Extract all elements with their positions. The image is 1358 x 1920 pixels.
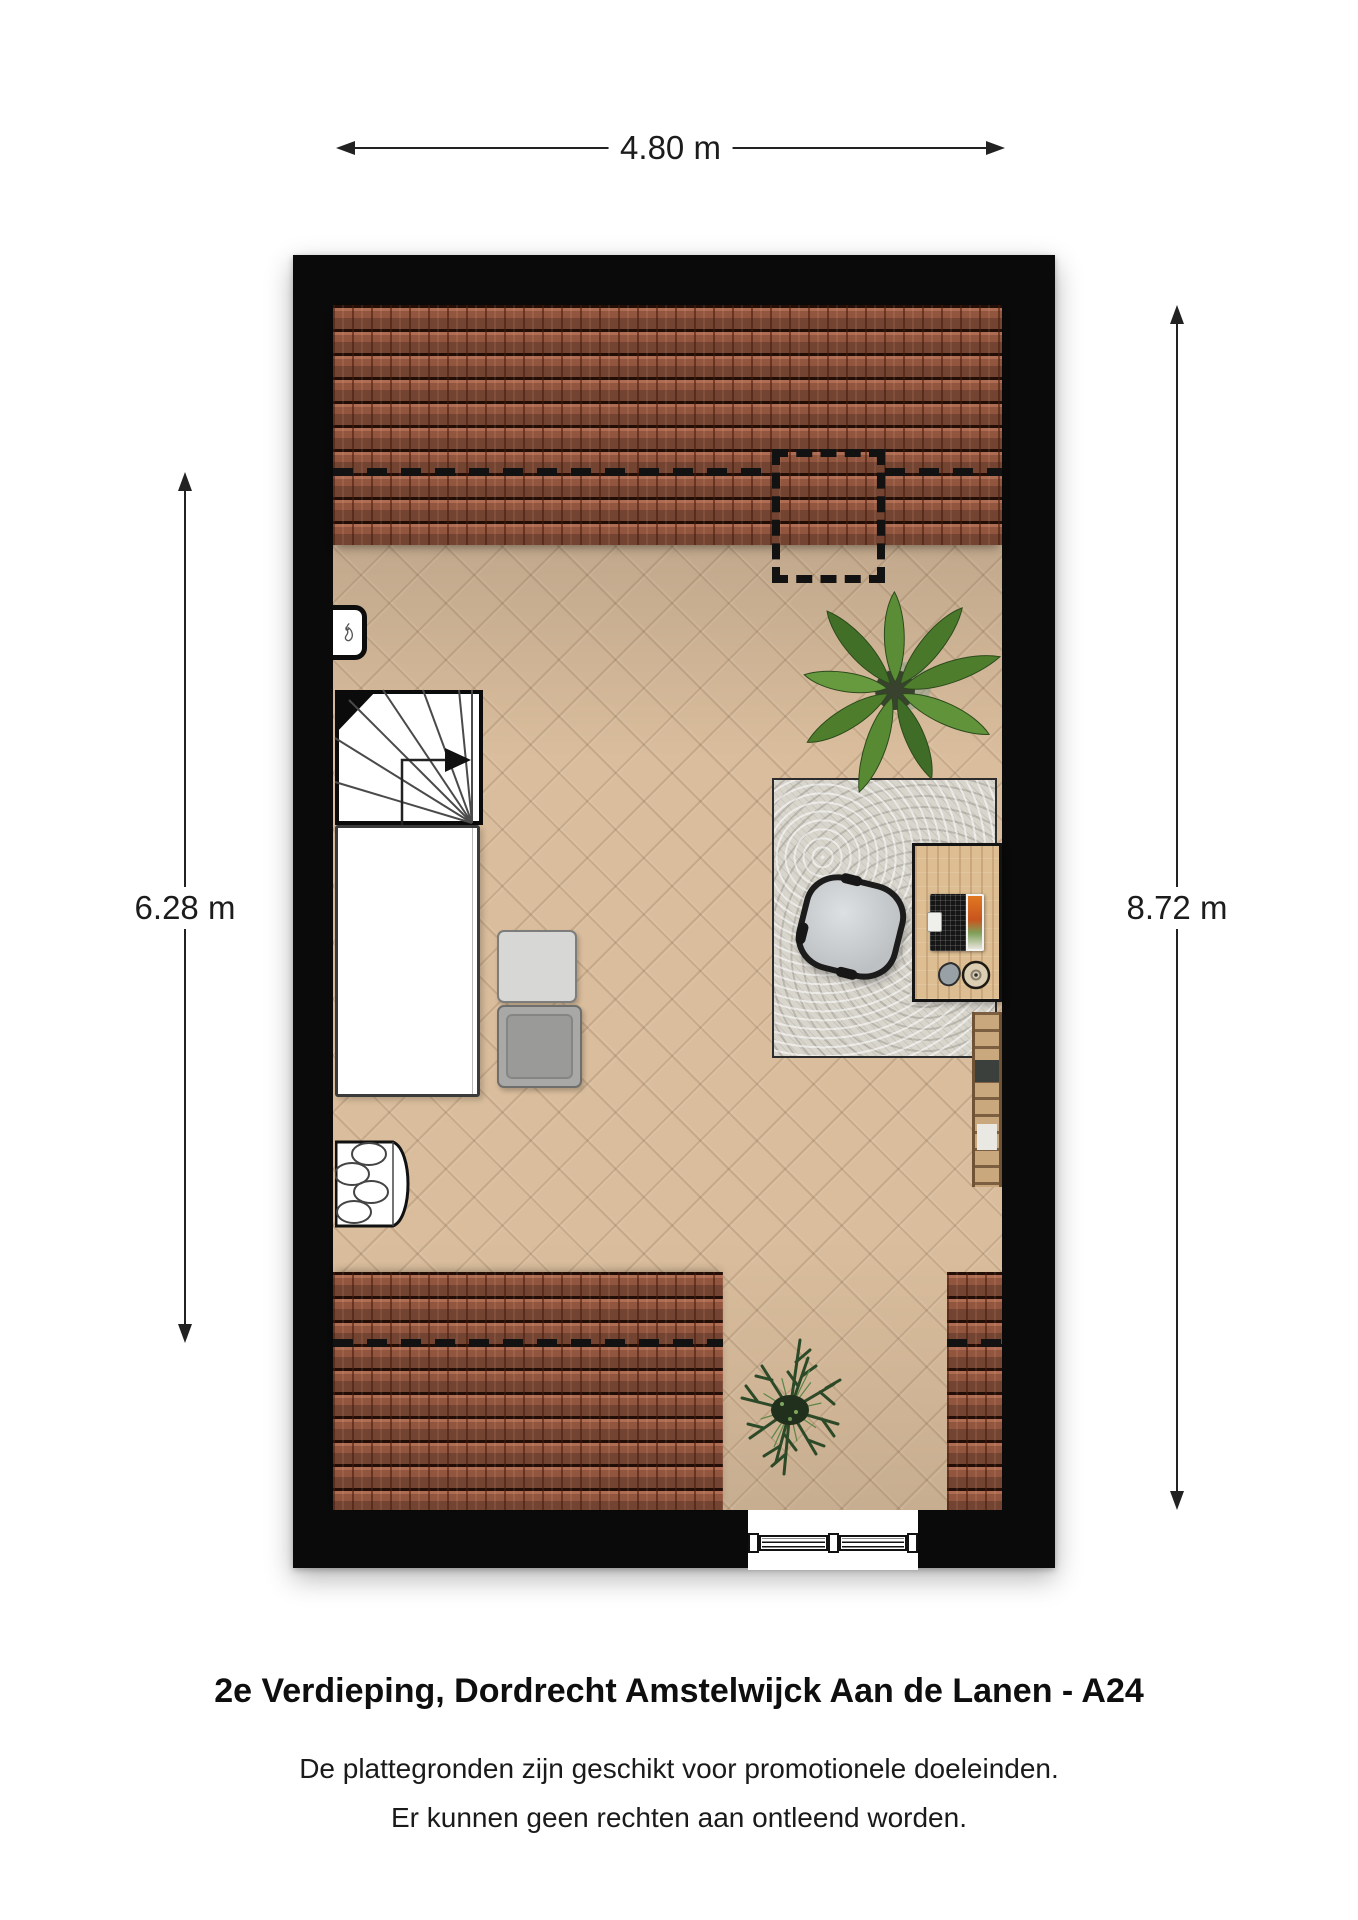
arrow-left-icon (336, 141, 355, 155)
dimension-left-height: 6.28 m (177, 472, 193, 1343)
boiler-unit (333, 605, 367, 660)
dimension-width: 4.80 m (336, 140, 1005, 156)
floor-plan (293, 255, 1055, 1568)
attic-room (333, 305, 1002, 1510)
laptop-screen-content (968, 896, 982, 949)
shelf-item-light (977, 1124, 997, 1150)
storage-box-dark (497, 1005, 582, 1088)
plan-disclaimer: De plattegronden zijn geschikt voor prom… (0, 1744, 1358, 1842)
desk-lamp (935, 956, 995, 996)
window-jamb (907, 1533, 918, 1553)
window-symbol (748, 1510, 918, 1570)
bed (335, 825, 480, 1097)
storage-box-lid (506, 1014, 573, 1079)
stair-corner-wedge (335, 690, 377, 734)
roof-section-bottom-right (947, 1272, 1002, 1510)
arrow-down-icon (178, 1324, 192, 1343)
ladder-shelf (972, 1012, 1002, 1187)
window-pane (839, 1535, 908, 1551)
arrow-up-icon (178, 472, 192, 491)
window-frame (748, 1533, 918, 1553)
shrub-plant-icon (725, 1330, 855, 1490)
window-jamb (748, 1533, 759, 1553)
headroom-dashed-line (885, 468, 1002, 476)
plan-title: 2e Verdieping, Dordrecht Amstelwijck Aan… (0, 1672, 1358, 1711)
arrow-right-icon (986, 141, 1005, 155)
window-mullion (828, 1533, 839, 1553)
window-pane (759, 1535, 828, 1551)
chair-armrest (794, 921, 809, 945)
disclaimer-line-2: Er kunnen geen rechten aan ontleend word… (0, 1793, 1358, 1842)
palm-plant-icon (780, 575, 1010, 805)
shelf-item-dark (975, 1060, 999, 1082)
roof-section-bottom-left (333, 1272, 723, 1510)
roof-section-top (333, 305, 1002, 545)
headroom-dashed-line (333, 468, 772, 476)
notepad (927, 912, 942, 932)
arrow-down-icon (1170, 1491, 1184, 1510)
dimension-width-label: 4.80 m (608, 127, 733, 169)
storage-box-light (497, 930, 577, 1003)
desk (912, 843, 1002, 1002)
flame-icon (338, 619, 358, 647)
floor-plan-page: 4.80 m 6.28 m 8.72 m (0, 0, 1358, 1920)
headroom-dashed-line (333, 1339, 723, 1347)
dimension-right-label: 8.72 m (1115, 887, 1240, 929)
dimension-left-label: 6.28 m (123, 887, 248, 929)
roof-window-dashed-outline (772, 449, 885, 583)
headroom-dashed-line (947, 1339, 1002, 1347)
dresser-cabinet (335, 1140, 419, 1228)
laptop-screen (966, 894, 984, 951)
bed-frame-line (472, 828, 473, 1094)
arrow-up-icon (1170, 305, 1184, 324)
disclaimer-line-1: De plattegronden zijn geschikt voor prom… (0, 1744, 1358, 1793)
dimension-right-height: 8.72 m (1169, 305, 1185, 1510)
